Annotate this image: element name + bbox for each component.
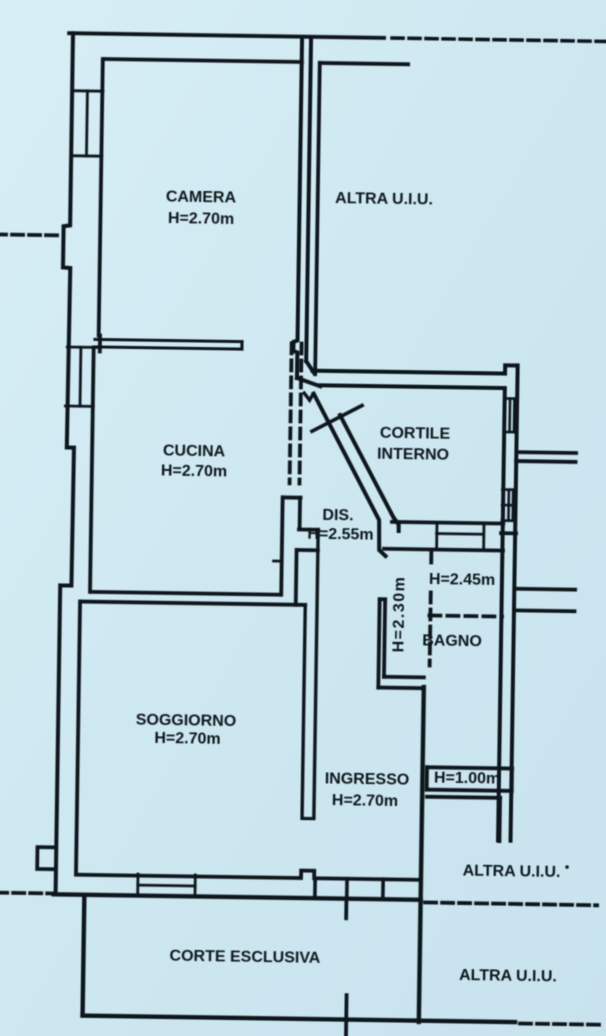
svg-text:BAGNO: BAGNO <box>422 632 482 650</box>
svg-text:H=2.70m: H=2.70m <box>168 210 235 228</box>
svg-text:H=1.00m: H=1.00m <box>434 770 501 788</box>
svg-text:CORTILE: CORTILE <box>380 424 451 442</box>
svg-text:H=2.70m: H=2.70m <box>154 730 221 748</box>
svg-text:INTERNO: INTERNO <box>377 446 449 464</box>
svg-text:CUCINA: CUCINA <box>163 443 226 461</box>
svg-text:H=2.55m: H=2.55m <box>307 526 374 544</box>
svg-text:DIS.: DIS. <box>322 507 353 524</box>
svg-text:INGRESSO: INGRESSO <box>325 770 410 788</box>
svg-text:SOGGIORNO: SOGGIORNO <box>136 711 237 730</box>
svg-text:CORTE ESCLUSIVA: CORTE ESCLUSIVA <box>169 947 321 966</box>
svg-text:ALTRA U.I.U.: ALTRA U.I.U. <box>463 862 561 880</box>
svg-text:H=2.45m: H=2.45m <box>429 571 496 589</box>
svg-text:CAMERA: CAMERA <box>166 188 237 206</box>
svg-text:ALTRA U.I.U.: ALTRA U.I.U. <box>459 967 557 985</box>
svg-text:H=2.70m: H=2.70m <box>332 792 399 810</box>
svg-text:H=2.70m: H=2.70m <box>161 463 228 481</box>
svg-text:ALTRA U.I.U.: ALTRA U.I.U. <box>335 190 433 208</box>
svg-text:H=2.30m: H=2.30m <box>390 576 408 653</box>
